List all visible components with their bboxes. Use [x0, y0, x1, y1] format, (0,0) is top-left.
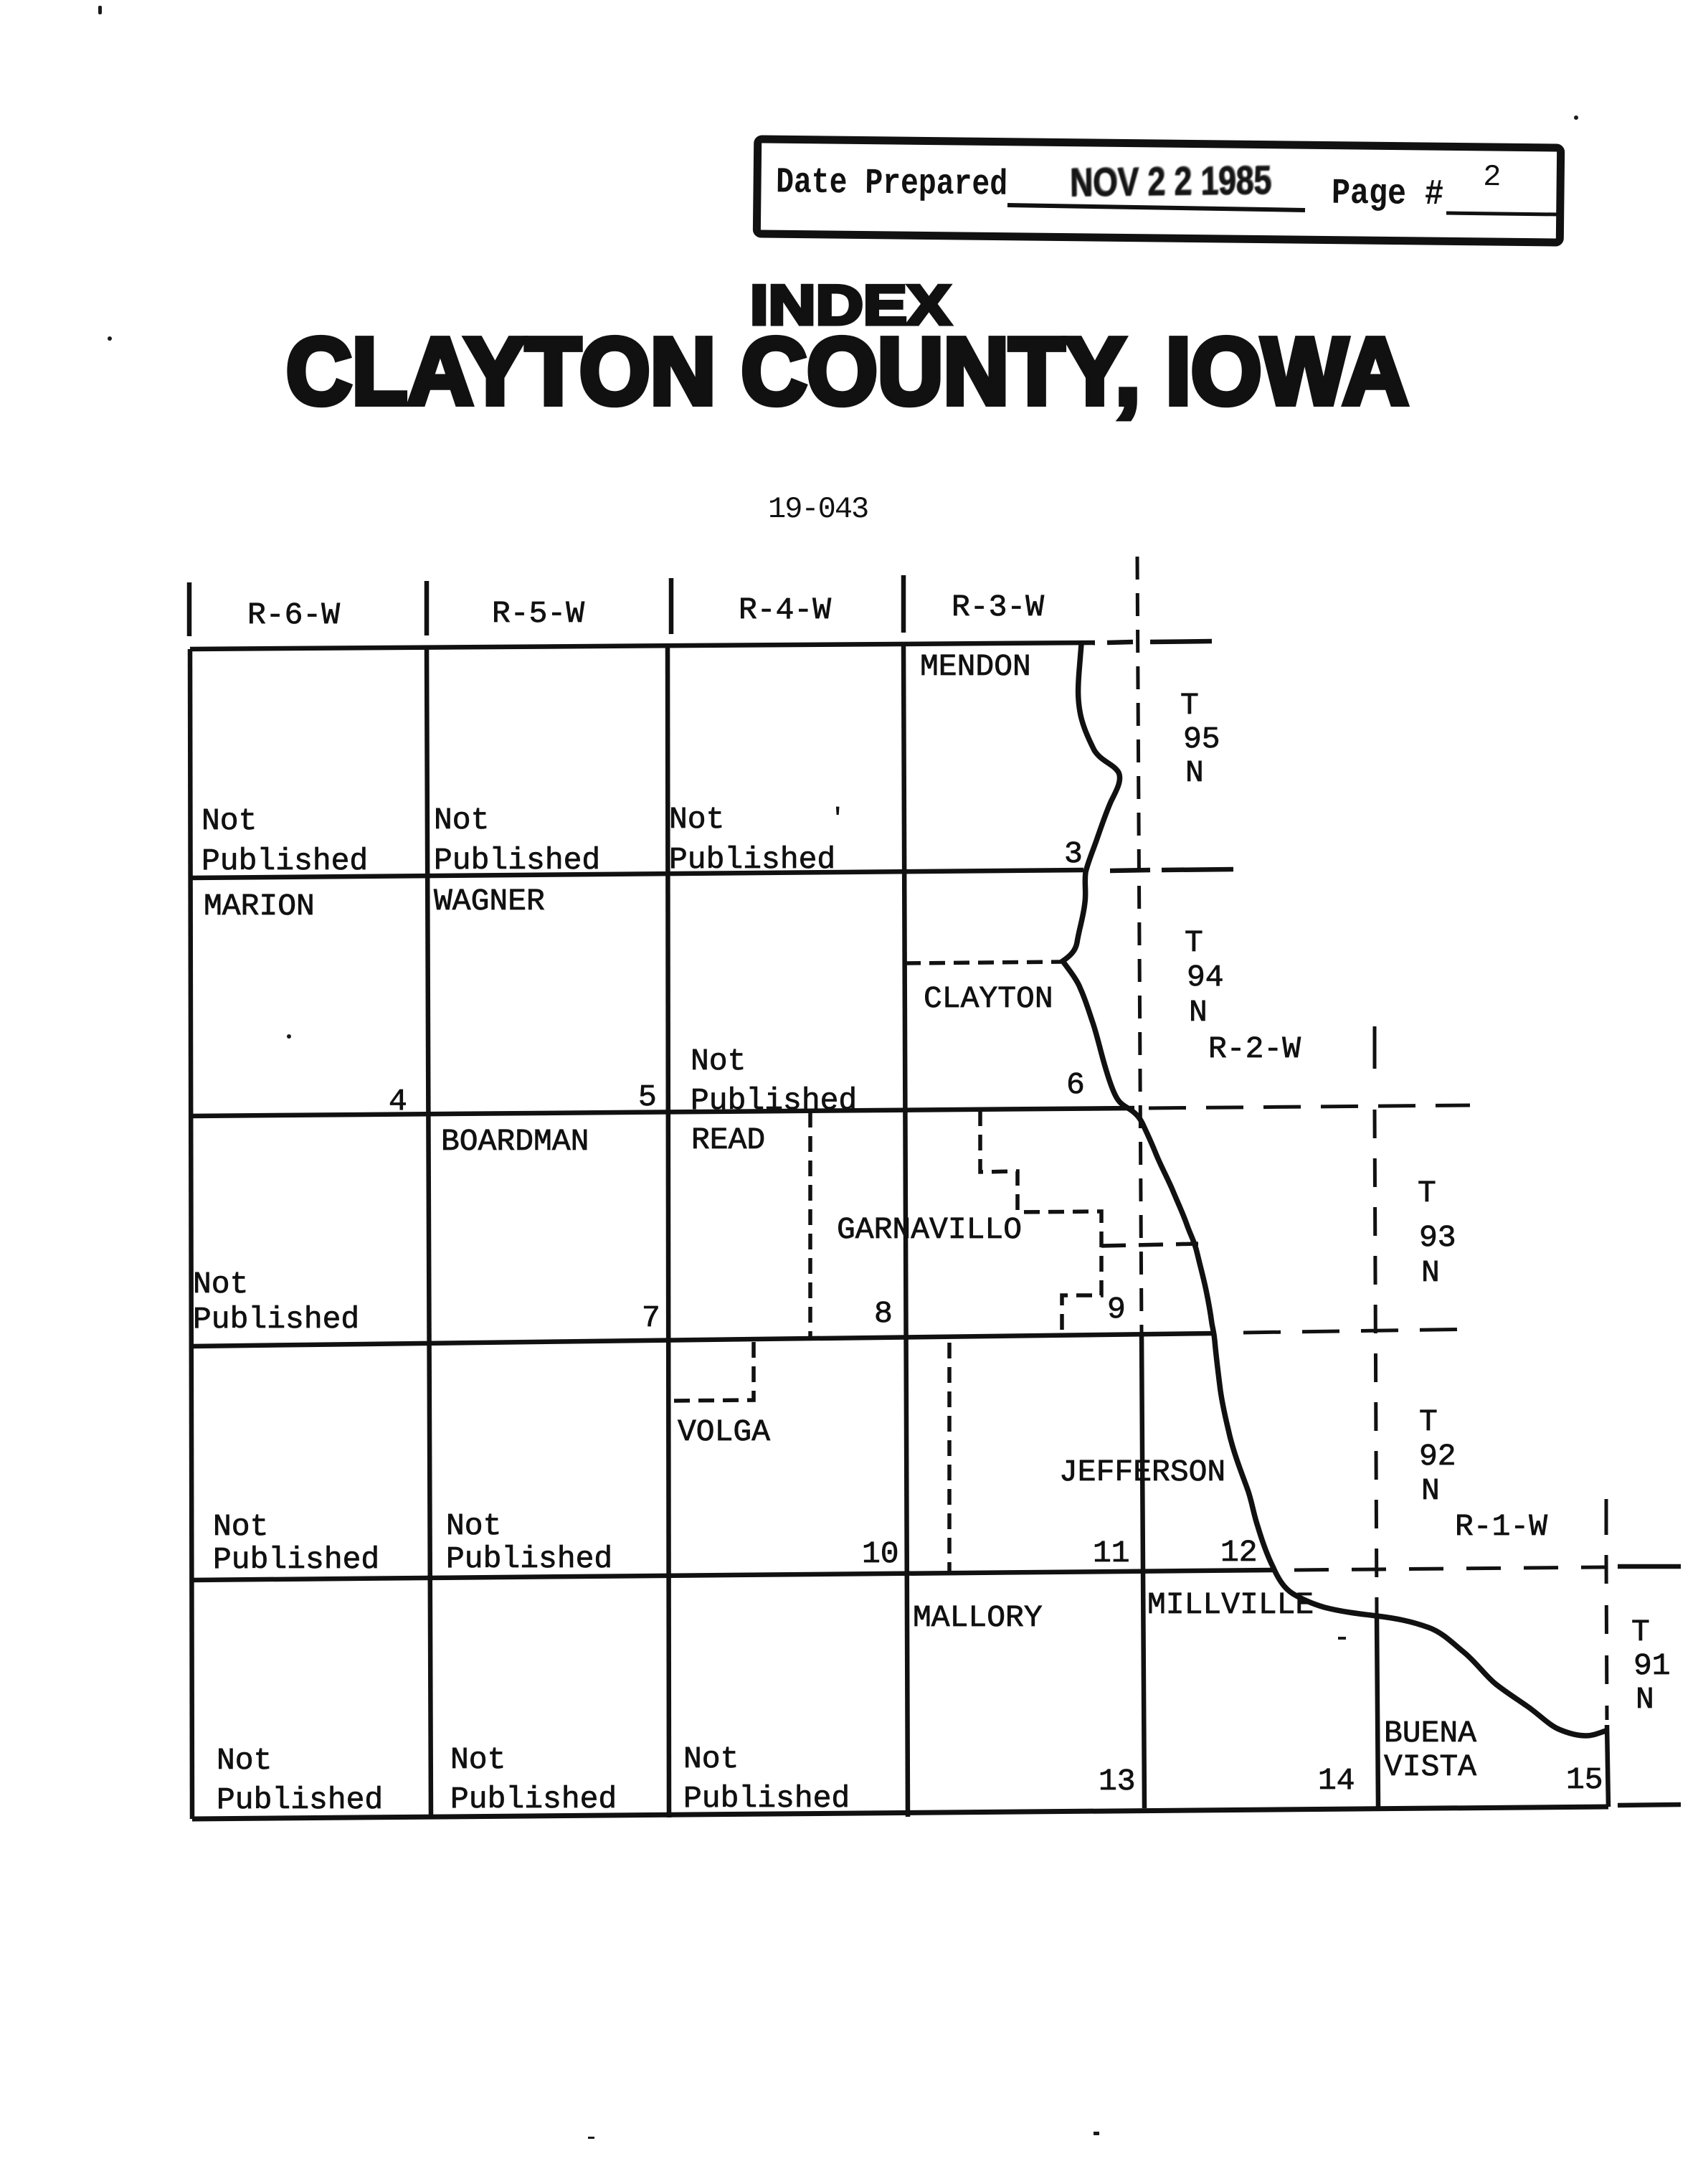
svg-text:Not: Not: [450, 1742, 506, 1777]
svg-text:9: 9: [1107, 1292, 1126, 1327]
svg-text:READ: READ: [691, 1122, 765, 1158]
svg-text:13: 13: [1099, 1764, 1136, 1799]
svg-text:R-6-W: R-6-W: [247, 597, 340, 633]
svg-text:19-043: 19-043: [768, 492, 868, 526]
svg-text:Not: Not: [434, 803, 489, 838]
svg-text:Published: Published: [691, 1083, 857, 1118]
svg-text:Published: Published: [213, 1542, 379, 1577]
svg-text:Published: Published: [201, 843, 368, 879]
svg-text:R-3-W: R-3-W: [952, 590, 1044, 625]
svg-text:N: N: [1185, 755, 1204, 790]
svg-text:12: 12: [1220, 1535, 1258, 1570]
svg-text:Published: Published: [193, 1302, 359, 1337]
svg-text:BOARDMAN: BOARDMAN: [441, 1124, 589, 1159]
svg-text:VISTA: VISTA: [1384, 1749, 1476, 1784]
svg-text:10: 10: [862, 1536, 899, 1571]
svg-text:GARNAVILLO: GARNAVILLO: [837, 1212, 1022, 1247]
svg-text:MARION: MARION: [204, 889, 315, 924]
svg-text:R-5-W: R-5-W: [492, 596, 584, 631]
svg-text:2: 2: [1483, 160, 1502, 194]
svg-text:Not: Not: [691, 1044, 746, 1079]
svg-text:T: T: [1185, 925, 1203, 960]
svg-text:91: 91: [1633, 1648, 1671, 1683]
svg-text:JEFFERSON: JEFFERSON: [1059, 1455, 1225, 1490]
svg-text:5: 5: [638, 1079, 657, 1115]
svg-text:Not: Not: [683, 1741, 739, 1777]
svg-text:15: 15: [1566, 1762, 1603, 1797]
svg-text:T: T: [1418, 1176, 1436, 1211]
svg-text:CLAYTON: CLAYTON: [924, 981, 1053, 1016]
svg-text:11: 11: [1093, 1536, 1130, 1571]
svg-text:T: T: [1180, 688, 1199, 723]
svg-text:N: N: [1421, 1473, 1440, 1508]
svg-text:MALLORY: MALLORY: [913, 1600, 1043, 1635]
svg-text:Date Prepared: Date Prepared: [776, 162, 1008, 205]
svg-text:R-1-W: R-1-W: [1455, 1509, 1547, 1544]
svg-text:R-4-W: R-4-W: [739, 592, 831, 628]
svg-text:Not: Not: [213, 1509, 268, 1544]
svg-text:Not: Not: [669, 802, 724, 837]
svg-text:Published: Published: [669, 842, 835, 877]
svg-text:NOV 2 2 1985: NOV 2 2 1985: [1071, 156, 1273, 204]
svg-text:N: N: [1636, 1682, 1654, 1717]
svg-text:': ': [830, 805, 845, 833]
svg-text:WAGNER: WAGNER: [434, 884, 545, 919]
svg-text:92: 92: [1419, 1439, 1456, 1474]
svg-text:Published: Published: [217, 1782, 383, 1817]
svg-text:Published: Published: [450, 1782, 617, 1817]
svg-text:R-2-W: R-2-W: [1208, 1031, 1301, 1067]
svg-text:6: 6: [1066, 1067, 1085, 1102]
svg-text:Page #: Page #: [1332, 174, 1444, 216]
svg-text:VOLGA: VOLGA: [678, 1414, 770, 1450]
svg-text:Published: Published: [683, 1781, 850, 1816]
svg-text:Not: Not: [446, 1508, 501, 1544]
svg-text:4: 4: [389, 1084, 407, 1119]
svg-text:93: 93: [1419, 1220, 1456, 1255]
svg-text:Not: Not: [217, 1743, 272, 1778]
svg-text:7: 7: [642, 1300, 660, 1336]
svg-text:N: N: [1189, 995, 1208, 1030]
svg-text:8: 8: [874, 1296, 893, 1331]
svg-text:CLAYTON COUNTY, IOWA: CLAYTON COUNTY, IOWA: [286, 318, 1408, 424]
svg-text:Published: Published: [434, 843, 600, 878]
svg-text:Published: Published: [446, 1541, 612, 1576]
svg-text:Not: Not: [201, 803, 257, 838]
svg-text:Not: Not: [193, 1267, 248, 1302]
svg-text:T: T: [1631, 1615, 1650, 1650]
svg-text:3: 3: [1064, 836, 1083, 871]
svg-text:14: 14: [1318, 1763, 1355, 1798]
svg-text:T: T: [1419, 1404, 1438, 1440]
svg-text:MENDON: MENDON: [920, 649, 1031, 684]
svg-text:N: N: [1421, 1255, 1440, 1290]
svg-text:94: 94: [1187, 960, 1224, 995]
svg-text:BUENA: BUENA: [1384, 1716, 1476, 1751]
svg-text:95: 95: [1183, 722, 1220, 757]
svg-text:MILLVILLE: MILLVILLE: [1147, 1587, 1314, 1622]
